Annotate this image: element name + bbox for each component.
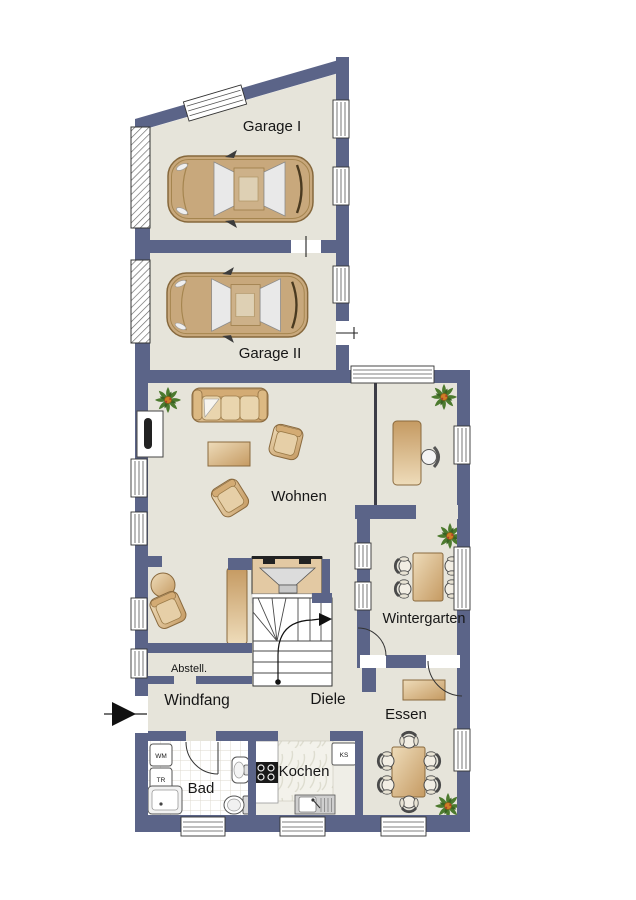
wall-stub — [148, 556, 162, 567]
window — [131, 598, 147, 630]
window — [454, 426, 470, 464]
wintergarten-label: Wintergarten — [382, 611, 465, 627]
windfang-bottom-wall — [148, 731, 186, 741]
plant-icon — [155, 387, 181, 413]
fireplace-icon — [252, 556, 322, 603]
essen-label: Essen — [385, 706, 427, 723]
diele-label: Diele — [310, 691, 345, 708]
office-door-opening — [416, 505, 458, 519]
wall-stub — [228, 558, 252, 570]
plant-icon — [431, 384, 457, 410]
dining-table — [413, 553, 443, 601]
door-opening — [360, 655, 386, 668]
floor-plan: KS WM TR — [0, 0, 636, 900]
shower-icon — [148, 786, 182, 814]
stove-icon — [254, 762, 278, 783]
wall-stub — [312, 593, 332, 603]
bad-top-wall — [216, 731, 278, 741]
kitchen-sink-icon — [295, 795, 335, 814]
window — [181, 817, 225, 836]
kochen-top-wall — [330, 731, 363, 741]
sideboard — [403, 680, 445, 700]
abstell-top-wall — [148, 643, 252, 653]
entrance-arrow-icon — [112, 702, 136, 726]
bathroom-sink-icon — [232, 757, 249, 783]
abstell-label: Abstell. — [171, 663, 207, 675]
window — [333, 266, 349, 303]
entrance-door — [104, 696, 148, 733]
diele-essen-wall — [362, 668, 376, 692]
car-icon — [168, 150, 313, 228]
dining-table — [392, 747, 425, 797]
window — [355, 543, 371, 569]
garage2-label: Garage II — [239, 345, 302, 362]
window — [355, 582, 371, 610]
desk — [393, 421, 421, 485]
window — [131, 512, 147, 545]
door-opening — [426, 655, 460, 668]
abstell-bottom-wall — [196, 676, 252, 684]
window — [131, 459, 147, 497]
fridge: KS — [332, 743, 356, 765]
kochen-right-wall — [355, 741, 363, 815]
garage-door-1 — [131, 127, 150, 228]
stairs — [253, 598, 332, 686]
fridge-label: KS — [340, 752, 349, 759]
floor-plan-drawing: KS WM TR — [0, 0, 636, 900]
garage2-side-door — [336, 321, 358, 345]
toilet-icon — [224, 796, 250, 814]
window — [381, 817, 426, 836]
window — [333, 100, 349, 138]
office-partition — [374, 383, 377, 505]
bad-kochen-wall — [248, 741, 256, 815]
garage-door-2 — [131, 260, 150, 343]
coffee-table — [208, 442, 250, 466]
car-icon — [167, 267, 308, 343]
window — [280, 817, 325, 836]
window — [131, 649, 147, 678]
cabinet — [227, 568, 247, 644]
wall-stub — [322, 559, 330, 594]
sofa-icon — [192, 388, 268, 422]
window — [454, 547, 470, 610]
washing-machine-label: WM — [155, 753, 167, 760]
bad-label: Bad — [188, 780, 215, 797]
chimney-icon — [137, 411, 163, 457]
window — [333, 167, 349, 205]
wohnen-label: Wohnen — [271, 488, 327, 505]
kochen-label: Kochen — [279, 763, 330, 780]
window — [351, 366, 434, 383]
windfang-label: Windfang — [164, 692, 229, 709]
abstell-bottom-wall — [148, 676, 174, 684]
washing-machine: WM — [150, 744, 172, 766]
garage1-label: Garage I — [243, 118, 301, 135]
dryer-label: TR — [157, 777, 166, 784]
stair-start-dot — [275, 679, 281, 685]
window — [454, 729, 470, 771]
